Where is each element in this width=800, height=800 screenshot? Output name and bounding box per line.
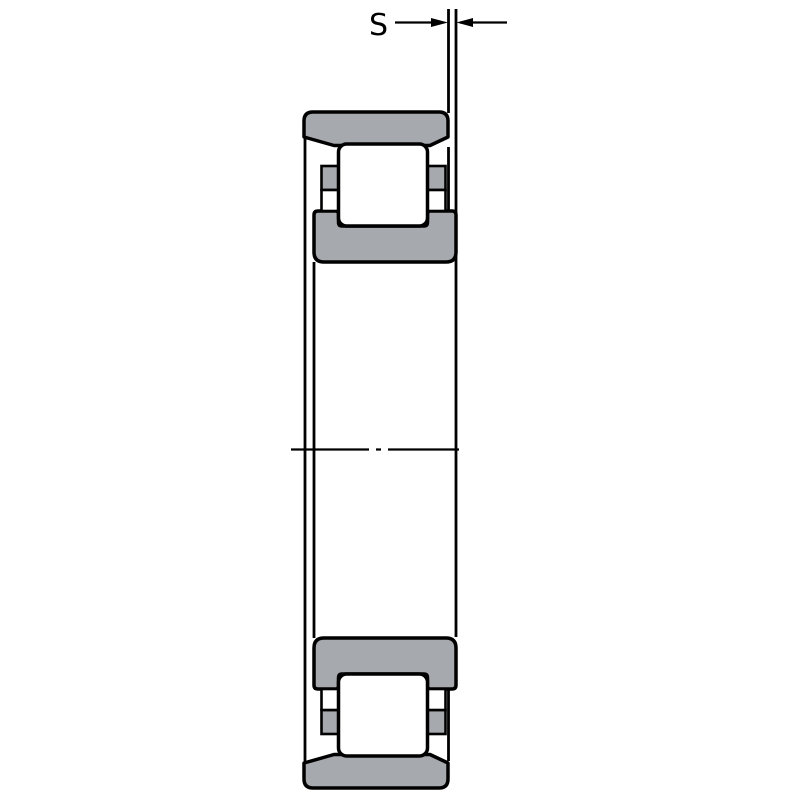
cage-gap-bottom-left [322, 689, 339, 710]
cage-bar-top-right [428, 166, 446, 190]
bearing-cross-section-diagram: S [0, 0, 800, 800]
top-half-section [304, 112, 456, 262]
roller-bottom [339, 674, 428, 756]
roller-top [339, 144, 428, 226]
bottom-half-section [304, 638, 456, 788]
cage-gap-bottom-right [428, 689, 446, 710]
cage-bar-bottom-left [322, 710, 339, 734]
cage-bar-top-left [322, 166, 339, 190]
cage-gap-top-left [322, 190, 339, 211]
dimension-s-label: S [369, 8, 388, 43]
cage-bar-bottom-right [428, 710, 446, 734]
arrowhead-left-pointing [457, 18, 474, 27]
dimension-s: S [369, 8, 507, 43]
arrowhead-right-pointing [431, 18, 448, 27]
outer-ring-top [304, 112, 448, 146]
cage-gap-top-right [428, 190, 446, 211]
drawing-canvas: S [0, 0, 800, 800]
outer-ring-bottom [304, 755, 448, 789]
